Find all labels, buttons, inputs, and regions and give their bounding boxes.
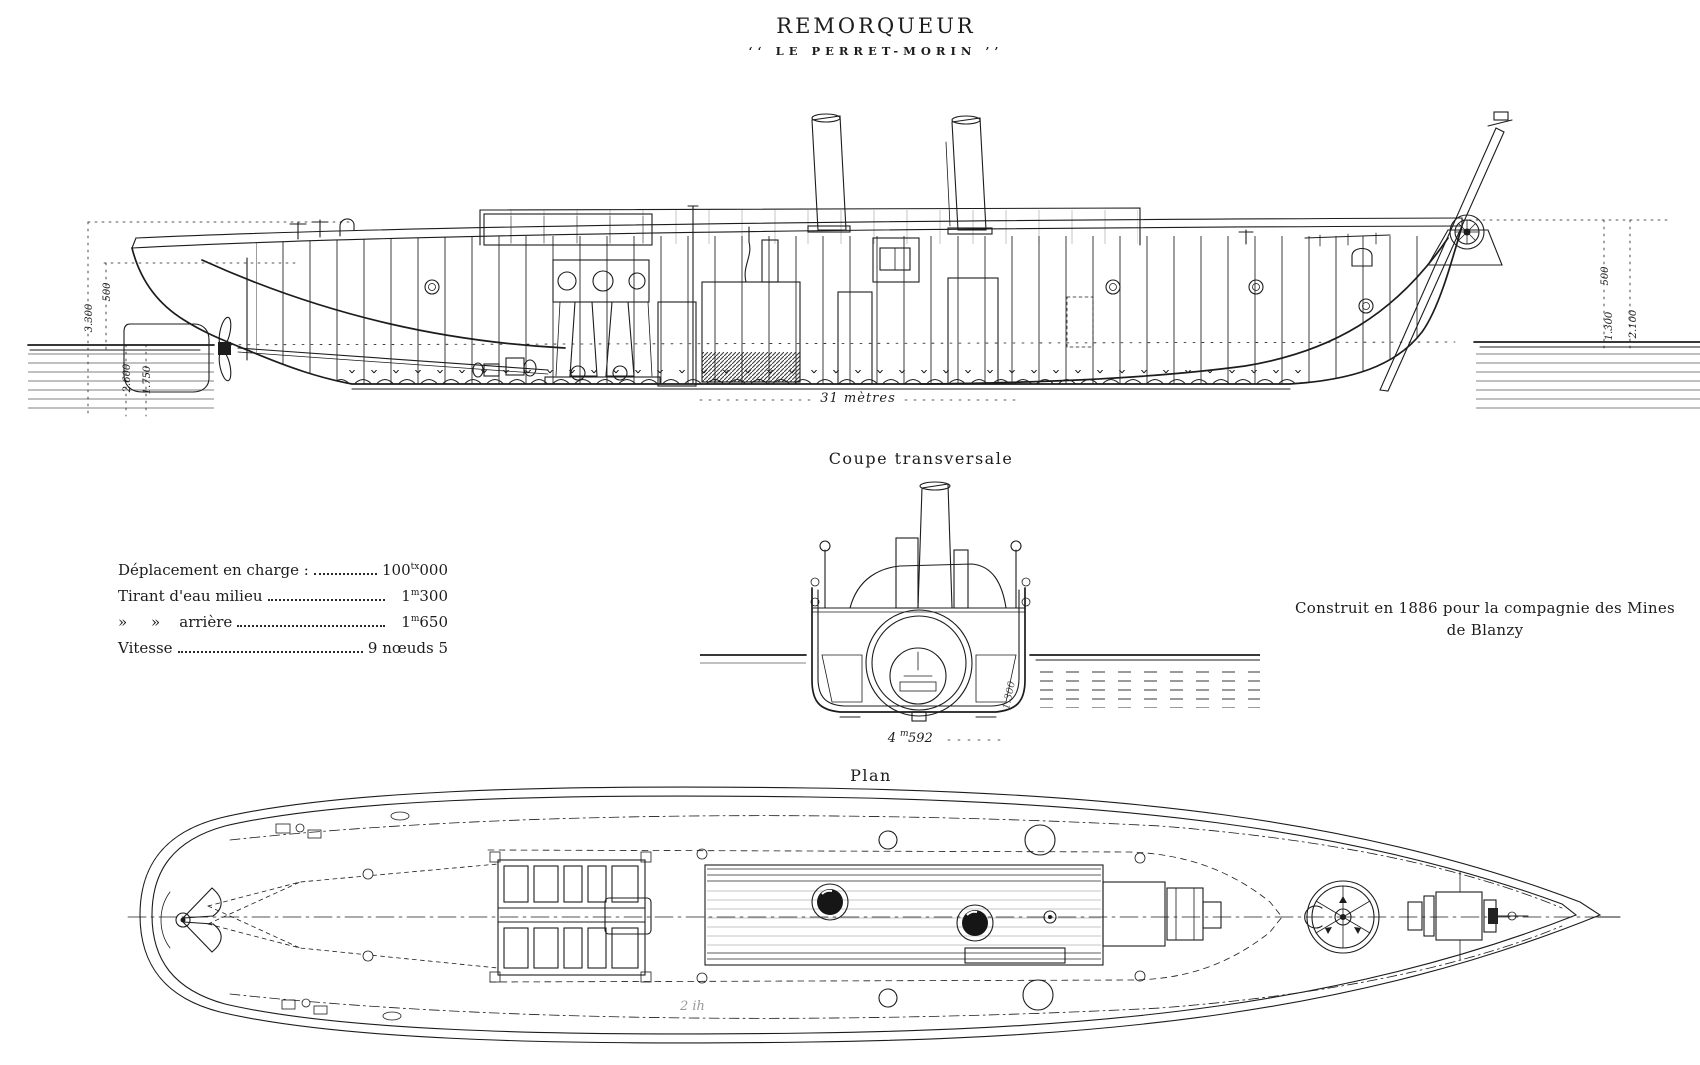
spec-value: 1m300 (390, 582, 448, 608)
pencil-note: 2 ih (679, 999, 705, 1014)
specs-table: Déplacement en charge : 100tx000 Tirant … (118, 556, 448, 660)
dotted-leader (268, 599, 386, 601)
svg-text:1.300: 1.300 (1604, 311, 1615, 340)
machinery-casing (488, 849, 1282, 983)
water-stern (28, 345, 214, 412)
beam-annotation: 4 m 592 (887, 729, 1000, 746)
side-davits (811, 541, 1030, 608)
spec-value: 1m650 (390, 608, 448, 634)
section-label: Coupe transversale (791, 449, 1051, 468)
dotted-leader (178, 651, 363, 653)
rudder-quadrant (161, 888, 221, 952)
drawing-title: REMORQUEUR (26, 14, 1700, 38)
side-elevation-drawing: 3.300 500 2.600 1.750 500 1.300 2.100 31… (0, 80, 1700, 440)
spec-value: 9 nœuds 5 (368, 634, 448, 660)
plan-view-drawing: 2 ih (110, 770, 1630, 1065)
stern-fittings (276, 812, 409, 1020)
dimension-annotations-right: 500 1.300 2.100 (1462, 220, 1668, 348)
title-block: REMORQUEUR ‘‘ LE PERRET-MORIN ’’ (26, 14, 1700, 58)
construction-note: Construit en 1886 pour la compagnie des … (1284, 597, 1686, 641)
svg-text:2.100: 2.100 (1628, 309, 1639, 339)
svg-text:592: 592 (908, 731, 933, 746)
spec-label: Vitesse (118, 637, 173, 660)
drawing-subtitle: ‘‘ LE PERRET-MORIN ’’ (26, 44, 1700, 58)
windlass (1408, 872, 1528, 960)
coal-bunkers (822, 655, 1016, 702)
water-bow (1474, 342, 1700, 411)
svg-text:2.600: 2.600 (122, 363, 133, 393)
svg-text:3.300: 3.300 (84, 303, 95, 332)
svg-text:500: 500 (1600, 266, 1611, 286)
svg-text:500: 500 (102, 282, 113, 302)
spec-value: 100tx000 (382, 556, 448, 582)
spec-label: Tirant d'eau milieu (118, 585, 263, 608)
section-funnel (850, 482, 1006, 608)
transverse-section-drawing: 1.300 4 m 592 (700, 470, 1260, 770)
stern-guide-lines (208, 864, 498, 968)
construction-note-line1: Construit en 1886 pour la compagnie des … (1284, 597, 1686, 619)
section-hull (812, 588, 1025, 721)
svg-text:4: 4 (887, 731, 896, 746)
spec-label: Déplacement en charge : (118, 559, 309, 582)
dotted-leader (314, 573, 377, 575)
spec-row-draught-mid: Tirant d'eau milieu 1m300 (118, 582, 448, 608)
svg-text:31 mètres: 31 mètres (820, 391, 896, 406)
length-annotation: 31 mètres (700, 391, 1020, 406)
dotted-leader (237, 625, 385, 627)
blueprint-sheet: REMORQUEUR ‘‘ LE PERRET-MORIN ’’ (0, 0, 1700, 1065)
spec-row-speed: Vitesse 9 nœuds 5 (118, 634, 448, 660)
spec-row-draught-aft: » » arrière 1m650 (118, 608, 448, 634)
spec-label: » » arrière (118, 611, 232, 634)
svg-text:1.750: 1.750 (142, 365, 153, 394)
spec-row-displacement: Déplacement en charge : 100tx000 (118, 556, 448, 582)
construction-note-line2: de Blanzy (1284, 619, 1686, 641)
section-boiler (866, 610, 972, 716)
